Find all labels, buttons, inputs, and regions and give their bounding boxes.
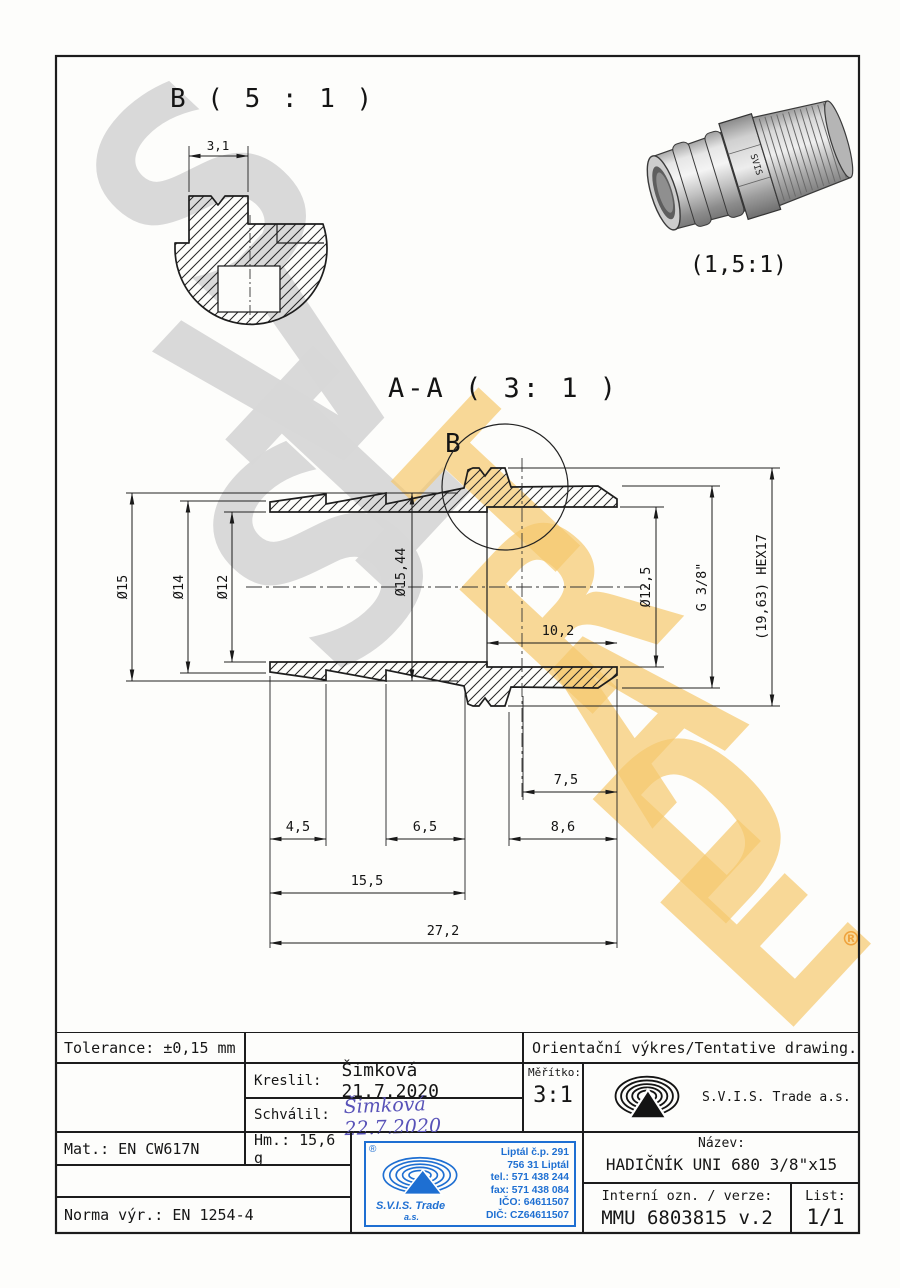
stamp-address: Liptál č.p. 291 756 31 Liptál tel.: 571 … bbox=[486, 1147, 569, 1222]
internal-id-value: MMU 6803815 v.2 bbox=[601, 1207, 773, 1229]
section-title: A-A ( 3: 1 ) bbox=[388, 373, 619, 404]
stamp-registered-mark: ® bbox=[369, 1144, 376, 1155]
tolerance-cell: Tolerance: ±0,15 mm bbox=[55, 1032, 245, 1063]
title-block: Tolerance: ±0,15 mm Orientační výkres/Te… bbox=[55, 1032, 860, 1233]
dim-8-6: 8,6 bbox=[551, 819, 575, 835]
section-bottom-band bbox=[270, 662, 617, 706]
sheet-cell: List: 1/1 bbox=[791, 1183, 860, 1233]
company-stamp: ® S.V.I.S. Trade a.s. Liptál č.p. 291 75… bbox=[364, 1141, 576, 1227]
dim-6-5: 6,5 bbox=[413, 819, 437, 835]
stamp-company-line1: S.V.I.S. Trade bbox=[376, 1200, 445, 1212]
stamp-address-line: fax: 571 438 084 bbox=[486, 1185, 569, 1198]
stamp-logo bbox=[376, 1155, 464, 1199]
drawing-sheet: S V I S T R A D E ® bbox=[0, 0, 900, 1288]
dim-10-2: 10,2 bbox=[542, 623, 575, 639]
name-label: Název: bbox=[698, 1133, 745, 1151]
name-value: HADIČNÍK UNI 680 3/8"x15 bbox=[606, 1155, 837, 1174]
approved-label: Schválil: bbox=[254, 1107, 330, 1123]
render-3d: SVIS (1,5:1) bbox=[637, 89, 861, 278]
stamp-address-line: tel.: 571 438 244 bbox=[486, 1172, 569, 1185]
dim-dia12-5: Ø12,5 bbox=[638, 567, 654, 608]
scale-label: Měřítko: bbox=[524, 1064, 582, 1079]
empty-cell-left bbox=[55, 1063, 245, 1132]
dim-thread: G 3/8" bbox=[694, 563, 710, 612]
dim-hex: (19,63) HEX17 bbox=[754, 534, 770, 640]
dim-15-5: 15,5 bbox=[351, 873, 384, 889]
stamp-address-line: Liptál č.p. 291 bbox=[486, 1147, 569, 1160]
dim-dia15: Ø15 bbox=[115, 575, 131, 599]
detail-b-bore-step bbox=[218, 266, 280, 312]
dim-7-5: 7,5 bbox=[554, 772, 578, 788]
dim-4-5: 4,5 bbox=[286, 819, 310, 835]
section-view: A-A ( 3: 1 ) B bbox=[115, 373, 780, 948]
dim-dia15-44: Ø15,44 bbox=[393, 548, 409, 597]
empty-cell-bottom bbox=[55, 1165, 351, 1197]
dim-27-2: 27,2 bbox=[427, 923, 460, 939]
approved-by-row: Schválil: Šimková 22.7.2020 bbox=[245, 1098, 523, 1132]
empty-cell-top bbox=[245, 1032, 523, 1063]
weight-cell: Hm.: 15,6 g bbox=[245, 1132, 351, 1165]
company-cell: S.V.I.S. Trade a.s. bbox=[583, 1063, 860, 1132]
dim-dia12: Ø12 bbox=[215, 575, 231, 599]
stamp-company-line2: a.s. bbox=[404, 1212, 419, 1222]
scale-cell: Měřítko: 3:1 bbox=[523, 1063, 583, 1132]
detail-b-title: B ( 5 : 1 ) bbox=[170, 84, 375, 114]
drawn-label: Kreslil: bbox=[254, 1073, 321, 1089]
internal-id-cell: Interní ozn. / verze: MMU 6803815 v.2 bbox=[583, 1183, 791, 1233]
sheet-label: List: bbox=[805, 1184, 846, 1204]
dim-dia14: Ø14 bbox=[171, 575, 187, 599]
scale-value: 3:1 bbox=[524, 1083, 582, 1108]
orientation-note: Orientační výkres/Tentative drawing. bbox=[523, 1032, 860, 1063]
name-cell: Název: HADIČNÍK UNI 680 3/8"x15 bbox=[583, 1132, 860, 1183]
stamp-address-line: DIČ: CZ64611507 bbox=[486, 1210, 569, 1223]
internal-id-label: Interní ozn. / verze: bbox=[602, 1184, 773, 1204]
detail-b-width-dim: 3,1 bbox=[207, 138, 230, 153]
standard-cell: Norma výr.: EN 1254-4 bbox=[55, 1197, 351, 1233]
stamp-cell: ® S.V.I.S. Trade a.s. Liptál č.p. 291 75… bbox=[351, 1132, 583, 1233]
company-name: S.V.I.S. Trade a.s. bbox=[702, 1090, 851, 1105]
company-logo bbox=[610, 1072, 684, 1124]
stamp-address-line: IČO: 64611507 bbox=[486, 1197, 569, 1210]
material-cell: Mat.: EN CW617N bbox=[55, 1132, 245, 1165]
stamp-address-line: 756 31 Liptál bbox=[486, 1160, 569, 1173]
detail-b-view: B ( 5 : 1 ) 3,1 bbox=[170, 84, 375, 325]
render-scale-label: (1,5:1) bbox=[690, 252, 787, 278]
sheet-value: 1/1 bbox=[807, 1205, 845, 1229]
